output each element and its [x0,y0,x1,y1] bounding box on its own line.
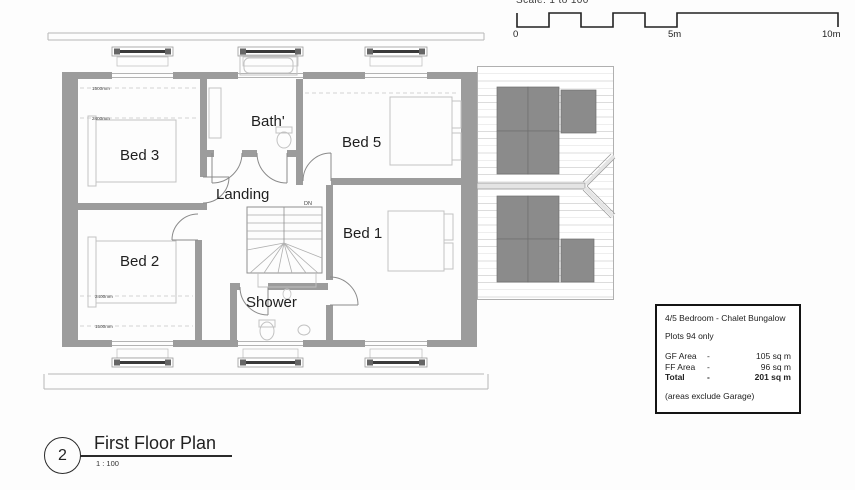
solar-panel-icon [497,87,528,131]
solar-panel-icon [497,196,528,239]
info-box-title: 4/5 Bedroom - Chalet Bungalow [665,313,791,323]
title-underline [80,455,232,457]
cupboard-icon [209,88,221,138]
dim-label: 2400mm [92,116,110,121]
ff-area-value: 96 sq m [723,362,791,372]
room-label-shower: Shower [246,294,297,311]
drawing-sheet: 0 5m 10m [0,0,855,490]
total-area-value: 201 sq m [723,372,791,382]
room-label-bed1: Bed 1 [343,225,382,242]
info-box-note: (areas exclude Garage) [665,391,791,401]
info-box-row-total: Total - 201 sq m [665,372,791,382]
stair-direction-label: DN [304,201,312,207]
solar-panel-icon [528,131,559,174]
window-icon [365,349,427,367]
room-label-bath: Bath' [251,113,285,130]
room-label-bed5: Bed 5 [342,134,381,151]
solar-panel-icon [497,131,528,174]
scale-tick-10m: 10m [822,29,841,40]
room-label-landing: Landing [216,186,269,203]
scale-caption: Scale: 1 to 100 [516,0,589,6]
floor-plan-drawing: 0 5m 10m [0,0,855,490]
room-labels: Bed 3 Bath' Bed 5 Landing Bed 1 Bed 2 Sh… [120,113,382,311]
dash: - [707,351,723,361]
drawing-title: First Floor Plan [94,433,216,454]
drawing-scale: 1 : 100 [96,459,119,468]
gf-area-label: GF Area [665,351,707,361]
dim-label: 2400mm [95,294,113,299]
info-box-row-ff: FF Area - 96 sq m [665,362,791,372]
solar-panel-icon [528,196,559,239]
solar-panel-icon [561,90,596,133]
info-box: 4/5 Bedroom - Chalet Bungalow Plots 94 o… [655,304,801,414]
dormer-windows-bottom [112,342,427,368]
window-icon [365,47,427,66]
solar-panel-icon [497,239,528,282]
toilet-icon [260,322,274,340]
toilet-icon [277,132,291,148]
dim-label: 1500mm [95,324,113,329]
window-icon [112,47,173,66]
scale-bar: 0 5m 10m [513,13,841,40]
dash: - [707,372,723,382]
scale-tick-5m: 5m [668,29,681,40]
dim-label: 1500mm [92,86,110,91]
drawing-number-circle: 2 [44,437,81,474]
bed-icon [390,97,452,165]
scale-tick-0: 0 [513,29,518,40]
bed-icon [388,211,444,271]
ff-area-label: FF Area [665,362,707,372]
info-box-row-gf: GF Area - 105 sq m [665,351,791,361]
window-icon [112,349,173,367]
gf-area-value: 105 sq m [723,351,791,361]
dash: - [707,362,723,372]
solar-panel-icon [528,239,559,282]
total-area-label: Total [665,372,707,382]
room-label-bed2: Bed 2 [120,253,159,270]
solar-panel-icon [528,87,559,131]
basin-icon [298,325,310,335]
wall-window-lines [112,342,427,346]
solar-panel-icon [561,239,594,282]
info-box-plots: Plots 94 only [665,331,791,341]
window-icon [238,349,303,367]
room-label-bed3: Bed 3 [120,147,159,164]
